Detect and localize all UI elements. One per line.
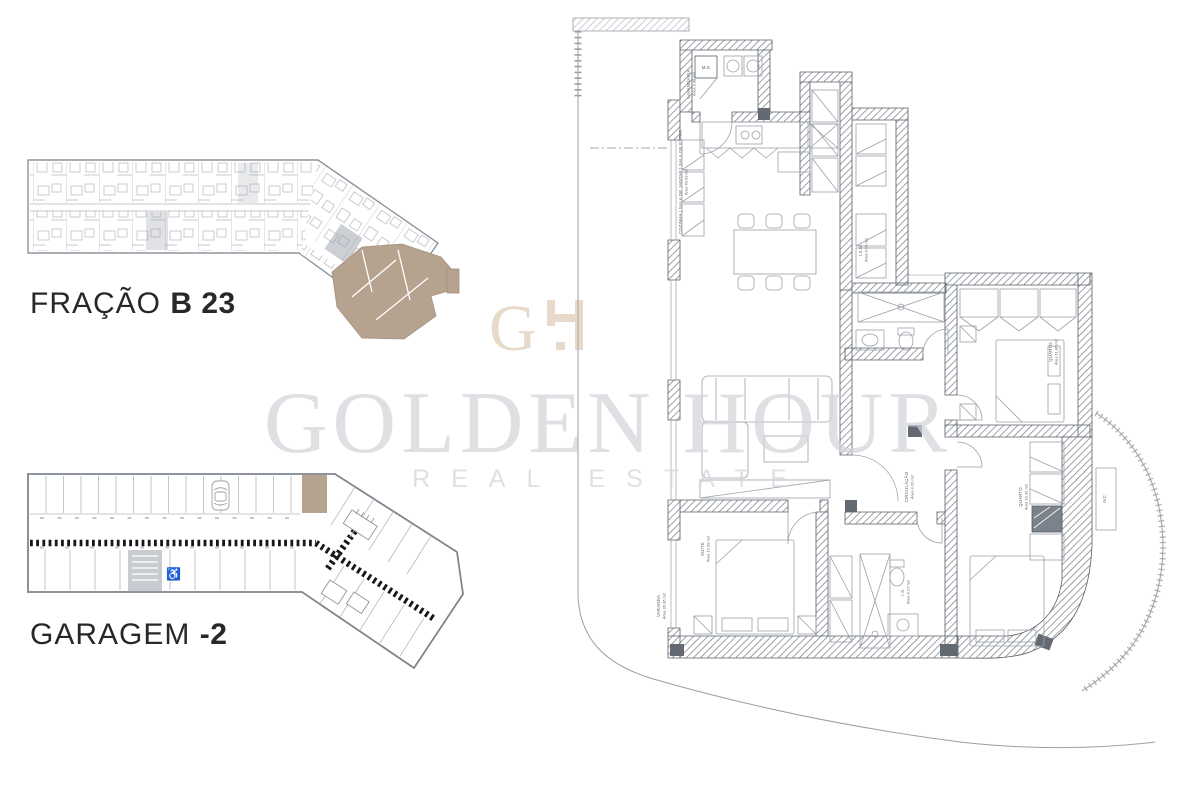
room-label-ism: I.S.M. [858,244,863,257]
car-icon [212,481,229,510]
fraction-caption-light: FRAÇÃO [30,287,161,320]
room-label-me: M.E [702,65,710,70]
building-highlight-unit [332,244,459,339]
plans-drawing: ♿ [0,0,1191,795]
room-label-ac: A/C [1102,495,1107,503]
garage-highlight-space [302,475,327,513]
apartment-plan: M.E LAVANDARIA Área 3.38 m2 COZINHA | SA… [573,18,1163,748]
floorplan-sheet: ♿ [0,0,1191,795]
room-label-is: I.S. [900,588,905,595]
room-label-quarto1: QUARTO [1048,342,1053,362]
svg-text:Área 4.56 m2: Área 4.56 m2 [864,237,869,262]
svg-text:Área 3.38 m2: Área 3.38 m2 [692,71,697,96]
apartment-walls [668,40,1092,658]
accessible-icon: ♿ [166,567,181,581]
svg-text:Área 4.20 m2: Área 4.20 m2 [910,474,915,499]
svg-text:Área 11.86 m2: Área 11.86 m2 [1054,338,1059,365]
room-label-suite: SUITE [700,542,705,556]
room-label-quarto2: QUARTO [1018,487,1023,507]
room-label-lavandaria: LAVANDARIA [686,69,691,98]
svg-text:Área 40.63 m2: Área 40.63 m2 [684,168,689,195]
fraction-caption-bold: B 23 [170,287,235,320]
svg-text:Área 12.99 m2: Área 12.99 m2 [706,535,711,562]
svg-text:Área 10.42 m2: Área 10.42 m2 [1024,483,1029,510]
garage-caption-light: GARAGEM [30,618,190,651]
room-label-circulacao: CIRCULAÇÃO [904,471,909,502]
building-units-top [30,162,316,203]
building-units-bottom [30,211,316,251]
room-label-cozinha: COZINHA | SALA DE JANTAR | SALA DE ESTAR [678,130,683,235]
fraction-caption: FRAÇÃO B 23 [30,287,236,321]
garage-caption: GARAGEM -2 [30,618,227,652]
garage-caption-bold: -2 [200,618,228,651]
garage-core [128,550,162,592]
room-label-varanda: VARANDA [656,595,661,617]
svg-text:Área 36.36 m2: Área 36.36 m2 [662,592,667,619]
svg-text:Área 4.17 m2: Área 4.17 m2 [906,579,911,604]
